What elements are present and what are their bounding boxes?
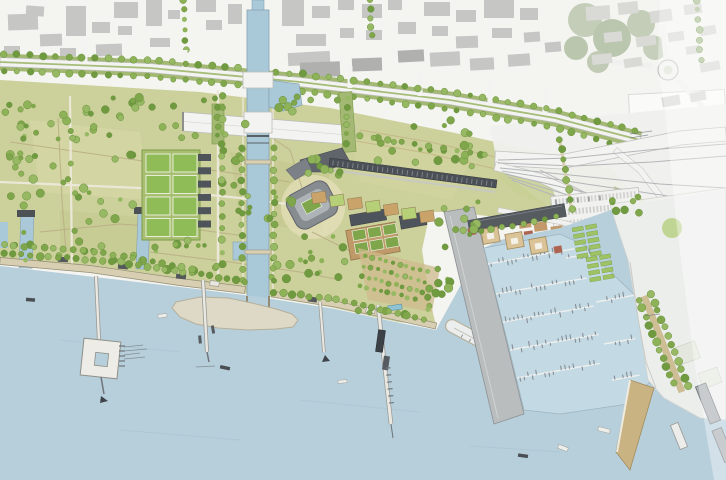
boulevard-trees (183, 61, 189, 67)
boulevard-trees (221, 63, 228, 70)
shore-street-trees (662, 324, 668, 330)
station-roof (467, 178, 468, 183)
city-block (398, 22, 416, 34)
station-roof (422, 172, 423, 177)
boulevard-trees (27, 51, 33, 57)
station-roof (362, 164, 363, 169)
promenade-trees (316, 294, 322, 300)
promenade-trees (144, 263, 151, 270)
boulevard-trees (171, 77, 176, 82)
shore-street-trees (675, 357, 683, 365)
link-trees (562, 166, 568, 172)
terrace-trees (425, 143, 432, 150)
sports-pitch (173, 197, 197, 215)
park-trees (241, 120, 249, 128)
city-block (96, 44, 122, 57)
promenade-trees (342, 299, 348, 305)
boulevard-trees (14, 69, 19, 74)
canal-trees (239, 167, 245, 173)
city-block (545, 41, 562, 52)
park-trees (20, 136, 26, 142)
park-trees (441, 205, 447, 211)
park-trees (438, 291, 445, 298)
boulevard-trees (594, 118, 601, 125)
promenade-trees (169, 262, 175, 268)
parking-row (606, 194, 607, 200)
street-trees (182, 17, 187, 22)
city-block (352, 57, 382, 71)
overpass-trees (344, 114, 349, 119)
station-roof (382, 167, 383, 172)
park-trees (442, 123, 447, 128)
park-trees (470, 225, 479, 234)
park-trees (24, 124, 29, 129)
path-trees (220, 250, 225, 255)
boulevard-trees (13, 50, 20, 57)
canal-trees (240, 266, 246, 272)
park-trees (294, 94, 300, 100)
city-block (118, 26, 132, 35)
station-roof (367, 165, 368, 170)
boulevard-trees (428, 103, 435, 110)
park-trees (635, 209, 642, 216)
park-trees (111, 96, 116, 101)
marina-trees (542, 217, 547, 222)
promenade-trees (215, 274, 222, 281)
city-block (282, 0, 304, 26)
park-trees (424, 294, 431, 301)
path-trees (219, 116, 226, 123)
orchard-trees (379, 279, 384, 284)
orchard-trees (386, 281, 391, 286)
canal-trees (270, 167, 277, 174)
station-roof (462, 177, 463, 182)
city-block (66, 6, 86, 36)
promenade-trees (377, 307, 383, 313)
moored-boat (607, 296, 608, 300)
park-trees (101, 106, 109, 114)
park-trees (246, 210, 251, 215)
park-trees (20, 202, 28, 210)
boulevard-trees (312, 89, 318, 95)
footbridge (245, 250, 271, 254)
orchard-trees (358, 284, 363, 289)
moored-boat (524, 377, 525, 380)
boulevard-trees (52, 70, 59, 77)
moored-boat (615, 342, 616, 345)
park-trees (112, 156, 119, 163)
parking-row (590, 207, 591, 213)
parking-row (597, 206, 598, 212)
orchard-trees (418, 267, 423, 272)
boulevard-trees (415, 102, 421, 108)
station-roof (392, 168, 393, 173)
moored-boat (611, 299, 612, 303)
park-trees (308, 250, 313, 255)
terrace-plot (329, 194, 344, 207)
park-trees (374, 157, 382, 165)
park-trees (460, 227, 467, 234)
station-roof (471, 179, 472, 184)
parking-row (563, 198, 564, 204)
station-roof (372, 166, 373, 171)
parking-row (586, 207, 587, 213)
boulevard-trees (504, 116, 511, 123)
orchard-trees (404, 264, 408, 268)
park-trees (118, 115, 124, 121)
parking-row (617, 193, 618, 199)
promenade-trees (45, 253, 52, 260)
context-grove (564, 36, 588, 60)
promenade-trees (403, 312, 411, 320)
park-trees (50, 163, 57, 170)
city-block (484, 0, 514, 18)
promenade-trees (140, 257, 146, 263)
park-trees (435, 266, 441, 272)
canal-trees (239, 254, 246, 261)
promenade-trees (270, 289, 277, 296)
park-trees (179, 135, 185, 141)
park-trees (59, 111, 67, 119)
moored-boat (587, 336, 588, 340)
orchard-trees (413, 296, 418, 301)
promenade-trees (82, 257, 89, 264)
sports-pavilion (198, 221, 211, 228)
promenade-trees (121, 253, 128, 260)
orchard-trees (384, 259, 388, 263)
promenade-trees (280, 289, 288, 297)
link-trees (569, 206, 576, 213)
moored-boat (583, 333, 584, 337)
park-trees (23, 258, 28, 263)
shore-street-trees (671, 349, 678, 356)
promenade-trees (130, 255, 136, 261)
shore-street-trees (668, 341, 675, 348)
overpass-trees (215, 124, 221, 130)
city-block (524, 31, 541, 42)
tennis-court (383, 223, 398, 235)
park-trees (118, 197, 123, 202)
promenade-trees (224, 275, 230, 281)
moored-boat (531, 317, 532, 320)
city-block (456, 36, 478, 49)
park-trees (635, 194, 641, 200)
canal-trees (271, 221, 278, 228)
boulevard-trees (556, 107, 562, 113)
street-trees (182, 37, 188, 43)
boulevard-trees (78, 54, 85, 61)
promenade-trees (10, 242, 17, 249)
park-trees (391, 139, 396, 144)
courtyard (511, 237, 519, 244)
moored-boat (531, 284, 532, 288)
park-trees (447, 116, 455, 124)
park-trees (17, 123, 24, 130)
park-trees (335, 273, 342, 280)
park-trees (170, 103, 177, 110)
boulevard-trees (377, 97, 383, 103)
city-block (146, 0, 162, 26)
sports-pitch (173, 219, 197, 237)
terrace-plot (311, 191, 326, 204)
marina-trees (521, 221, 527, 227)
city-block (430, 51, 461, 67)
park-trees (287, 197, 295, 205)
moored-boat (623, 375, 624, 378)
promenade-trees (18, 251, 23, 256)
park-trees (339, 243, 347, 251)
park-trees (26, 155, 33, 162)
parking-row (583, 208, 584, 214)
moored-boat (552, 281, 553, 284)
boulevard-trees (326, 74, 331, 79)
park-trees (184, 244, 189, 249)
moored-boat (512, 260, 513, 264)
street-trees (368, 6, 375, 13)
boulevard-trees (158, 75, 163, 80)
boulevard-trees (105, 72, 111, 78)
boulevard-trees (479, 94, 486, 101)
park-trees (303, 259, 308, 264)
sports-pitch (146, 197, 170, 215)
path-trees (219, 201, 225, 207)
orchard-trees (384, 289, 389, 294)
boulevard-trees (428, 86, 434, 92)
parking-row (631, 191, 632, 197)
park-trees (65, 176, 70, 181)
park-trees (97, 198, 103, 204)
park-trees (273, 195, 278, 200)
station-roof (481, 180, 482, 185)
boulevard-trees (402, 101, 409, 108)
orchard-trees (391, 291, 396, 296)
canal-trees (239, 232, 246, 239)
street-trees (181, 6, 187, 12)
orchard-trees (407, 286, 412, 291)
orchard-trees (403, 274, 408, 279)
park-trees (22, 192, 30, 200)
street-trees (183, 27, 188, 32)
boulevard-trees (454, 108, 459, 113)
boulevard-trees (581, 115, 587, 121)
park-trees (31, 104, 36, 109)
shore-street-trees (643, 314, 649, 320)
terrace-trees (468, 150, 473, 155)
footbridge (245, 160, 271, 164)
park-trees (355, 307, 362, 314)
park-trees (434, 279, 442, 287)
park-trees (173, 242, 178, 247)
park-trees (48, 120, 55, 127)
boulevard-trees (145, 73, 150, 78)
park-trees (88, 111, 93, 116)
shore-street-trees (671, 380, 678, 387)
boulevard-trees (197, 79, 203, 85)
promenade-trees (60, 246, 66, 252)
moored-boat (585, 308, 586, 312)
master-plan (0, 0, 726, 480)
terrace-trees (356, 133, 363, 140)
sports-pavilion (198, 167, 211, 174)
park-trees (412, 159, 419, 166)
marina-trees (510, 223, 516, 229)
promenade-trees (351, 300, 357, 306)
link-trees (566, 186, 573, 193)
marina-trees (499, 224, 505, 230)
city-block (312, 6, 330, 18)
park-trees (68, 161, 73, 166)
city-block (168, 10, 180, 19)
park-trees (426, 285, 434, 293)
shore-street-trees (684, 382, 692, 390)
park-trees (460, 215, 467, 222)
park-trees (444, 284, 453, 293)
orchard-trees (376, 267, 380, 271)
city-block (398, 49, 425, 62)
boulevard-trees (414, 85, 421, 92)
terrace-plot (401, 207, 416, 220)
park-trees (19, 171, 24, 176)
canal-trees (238, 155, 244, 161)
park-trees (411, 123, 417, 129)
moored-boat (573, 363, 574, 368)
sports-pavilion (198, 194, 211, 201)
orchard-trees (389, 270, 394, 275)
parking-row (627, 192, 628, 198)
promenade-trees (31, 244, 37, 250)
park-trees (463, 206, 469, 212)
platform-opening (94, 352, 108, 366)
promenade-trees (189, 266, 196, 273)
shore-street-trees (662, 363, 670, 371)
park-trees (231, 182, 237, 188)
station-roof (412, 171, 413, 176)
canal-trees (270, 232, 277, 239)
boulevard-trees (365, 96, 370, 101)
station-roof (348, 162, 349, 167)
park-trees (6, 102, 12, 108)
promenade-trees (73, 255, 79, 261)
boulevard-bridge (243, 72, 273, 88)
marina-trees (488, 226, 495, 233)
city-block-faded (604, 31, 623, 43)
moored-boat (545, 340, 546, 344)
moored-boat (516, 259, 517, 262)
boulevard-trees (183, 77, 188, 82)
shore-street-trees (666, 372, 672, 378)
moored-boat (550, 343, 551, 346)
terrace-trees (455, 148, 460, 153)
moored-boat (619, 341, 620, 345)
park-trees (111, 214, 120, 223)
parking-row (594, 206, 595, 212)
orchard-trees (409, 276, 413, 280)
shore-street-trees (681, 374, 689, 382)
promenade-trees (110, 252, 116, 258)
canal-trees (239, 222, 244, 227)
canal-trees (271, 156, 276, 161)
city-block (508, 53, 531, 67)
canal-trees (239, 243, 246, 250)
shore-street-trees (660, 355, 667, 362)
courtyard (535, 242, 543, 249)
shore-street-trees (654, 307, 660, 313)
path-trees (218, 153, 224, 159)
boulevard-trees (208, 79, 215, 86)
boulevard-trees (619, 124, 626, 131)
canal-trees (271, 199, 278, 206)
boulevard-trees (390, 82, 397, 89)
park-trees (90, 123, 97, 130)
parking-row (595, 195, 596, 201)
moored-boat (538, 312, 539, 316)
shore-street-trees (636, 297, 642, 303)
overpass-trees (344, 104, 350, 110)
city-block (470, 57, 495, 70)
promenade-trees (9, 251, 16, 258)
shore-street-trees (638, 304, 646, 312)
station-roof (377, 166, 378, 171)
park-trees (202, 243, 206, 247)
shore-street-trees (651, 299, 659, 307)
station-roof (333, 161, 334, 166)
boulevard-trees (480, 111, 486, 117)
parking-row (602, 194, 603, 200)
city-block (196, 0, 216, 12)
station-roof (442, 175, 443, 180)
boulevard-trees (389, 100, 394, 105)
city-block (26, 5, 45, 16)
plan-svg (0, 0, 726, 480)
moored-boat (619, 293, 620, 297)
park-trees (17, 151, 23, 157)
marina-trees (467, 232, 472, 237)
park-trees (149, 104, 156, 111)
boulevard-trees (517, 100, 524, 107)
park-trees (308, 255, 315, 262)
boulevard-trees (66, 54, 72, 60)
park-trees (129, 201, 137, 209)
city-block (338, 0, 354, 10)
park-trees (212, 96, 217, 101)
street-trees (367, 24, 374, 31)
park-trees (621, 206, 629, 214)
station-roof (452, 176, 453, 181)
moored-boat (540, 286, 541, 290)
park-trees (18, 107, 24, 113)
city-block (114, 2, 138, 18)
moored-boat (523, 254, 524, 258)
boulevard-trees (78, 70, 85, 77)
tennis-court (370, 239, 385, 251)
boulevard-trees (493, 114, 500, 121)
boulevard-trees (66, 70, 73, 77)
orchard-trees (367, 276, 371, 280)
sports-pavilion (198, 181, 211, 188)
park-trees (7, 192, 14, 199)
promenade-trees (99, 258, 106, 265)
promenade-trees (80, 247, 86, 253)
orchard-trees (405, 295, 410, 300)
park-trees (99, 209, 107, 217)
path-trees (219, 92, 226, 99)
orchard-trees (420, 290, 425, 295)
park-trees (315, 271, 320, 276)
boulevard-trees (518, 118, 524, 124)
promenade-trees (162, 267, 168, 273)
district-building (553, 245, 562, 253)
sports-pitch (146, 219, 170, 237)
